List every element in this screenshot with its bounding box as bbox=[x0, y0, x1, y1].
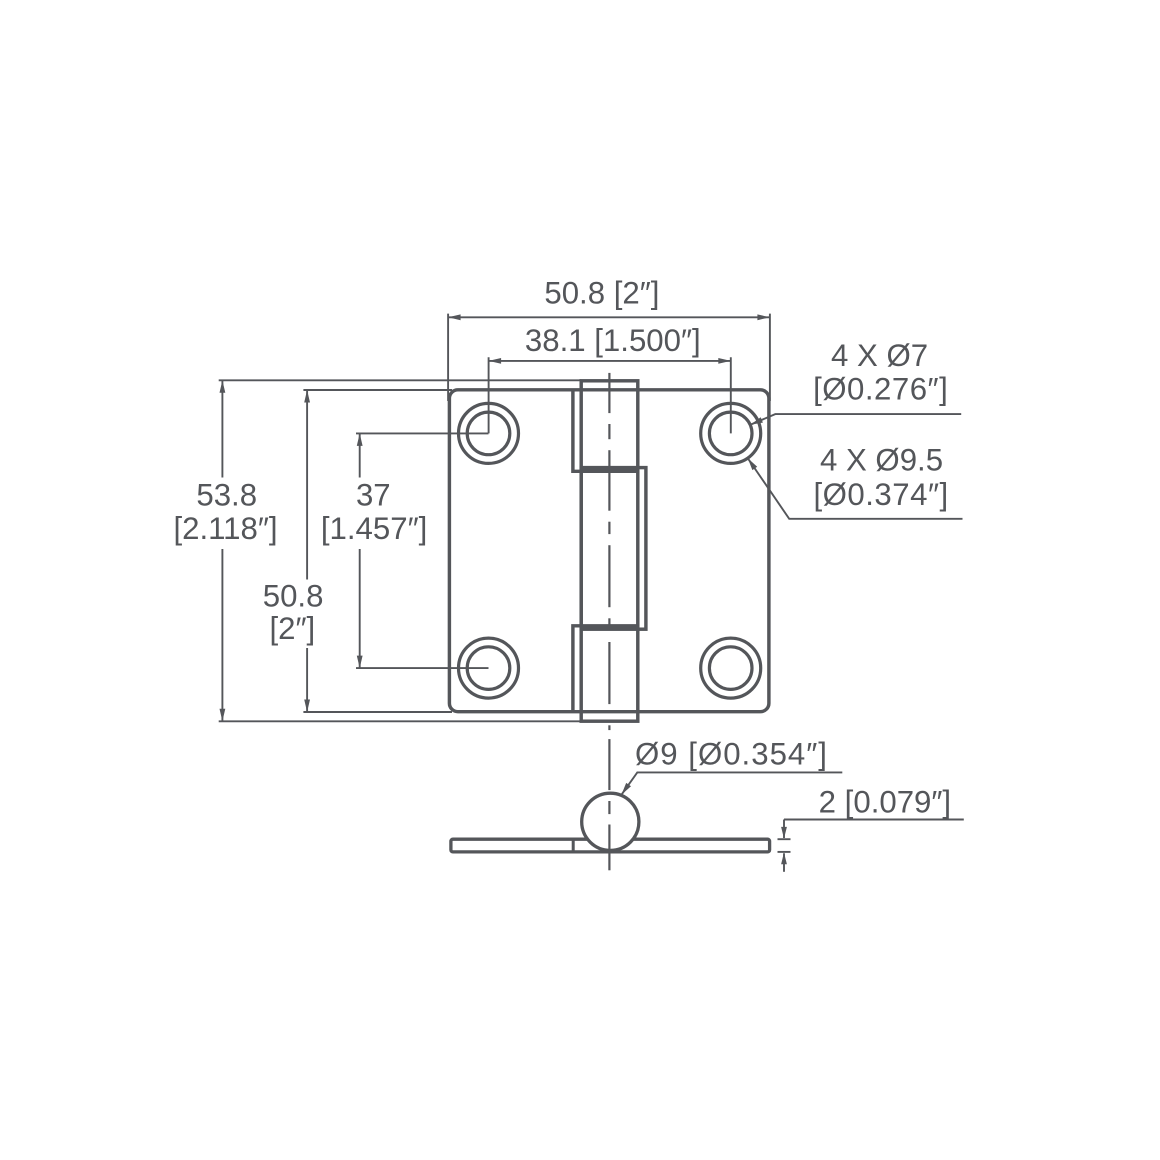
svg-text:4 X Ø7: 4 X Ø7 bbox=[831, 338, 928, 373]
svg-text:4 X Ø9.5: 4 X Ø9.5 bbox=[820, 443, 943, 478]
svg-text:[1.457″]: [1.457″] bbox=[321, 511, 427, 546]
svg-text:50.8 [2″]: 50.8 [2″] bbox=[544, 276, 659, 311]
svg-text:37: 37 bbox=[356, 477, 391, 512]
svg-text:[Ø0.374″]: [Ø0.374″] bbox=[814, 477, 949, 512]
svg-text:53.8: 53.8 bbox=[196, 477, 257, 512]
svg-text:Ø9 [Ø0.354″]: Ø9 [Ø0.354″] bbox=[635, 737, 828, 772]
svg-text:50.8: 50.8 bbox=[263, 578, 324, 613]
svg-text:[Ø0.276″]: [Ø0.276″] bbox=[813, 372, 948, 407]
svg-text:[2.118″]: [2.118″] bbox=[173, 511, 277, 546]
svg-text:2 [0.079″]: 2 [0.079″] bbox=[819, 784, 951, 819]
svg-text:[2″]: [2″] bbox=[269, 611, 315, 646]
svg-text:38.1 [1.500″]: 38.1 [1.500″] bbox=[525, 323, 701, 358]
